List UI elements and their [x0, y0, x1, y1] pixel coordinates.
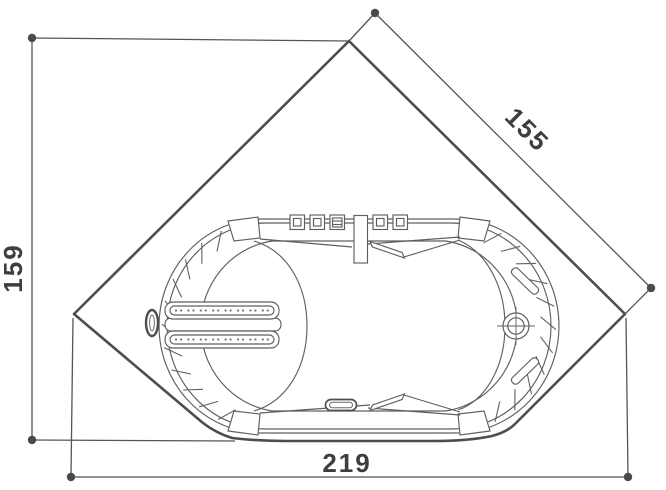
jet-dot — [200, 309, 202, 311]
rim-end-block — [458, 411, 490, 435]
control-button — [290, 215, 305, 230]
jet-dot — [180, 309, 182, 311]
jet-dot — [212, 338, 214, 340]
jet-dot — [237, 309, 239, 311]
overflow-fitting — [326, 400, 357, 411]
jet-dot — [237, 338, 239, 340]
dimension-label-219: 219 — [322, 448, 371, 478]
dim-219-ext-right — [626, 318, 628, 477]
dim-dot — [371, 9, 379, 17]
dim-dot — [28, 34, 36, 42]
drawing-canvas: 155 159 219 — [0, 0, 666, 490]
backrest-jet-rails — [165, 302, 281, 348]
dimension-label-155: 155 — [499, 102, 555, 158]
dim-159-ext-bottom — [32, 440, 235, 441]
jet-dot — [249, 309, 251, 311]
rim-tick — [183, 389, 203, 390]
jet-dot — [187, 338, 189, 340]
jet-dot — [267, 338, 269, 340]
jet-dot — [224, 338, 226, 340]
rail-middle — [165, 318, 281, 331]
jet-dot — [217, 309, 219, 311]
jet-dot — [229, 338, 231, 340]
rim-end-block — [228, 411, 260, 435]
jet-dot — [175, 338, 177, 340]
jet-dot — [262, 338, 264, 340]
jet-dot — [229, 309, 231, 311]
dim-dot — [624, 473, 632, 481]
dim-dot — [67, 473, 75, 481]
jet-dot — [242, 338, 244, 340]
jet-dot — [262, 309, 264, 311]
jet-dot — [175, 309, 177, 311]
jet-dot — [187, 309, 189, 311]
dimension-label-159: 159 — [0, 243, 28, 292]
rim-end-block — [458, 217, 490, 241]
dim-159-ext-top — [32, 38, 349, 41]
jet-dot — [254, 309, 256, 311]
control-button — [373, 215, 388, 230]
bathtub-technical-drawing: 155 159 219 — [0, 0, 666, 490]
jet-dot — [205, 338, 207, 340]
jet-dot — [200, 338, 202, 340]
jet-dot — [180, 338, 182, 340]
jet-dot — [205, 309, 207, 311]
jet-dot — [212, 309, 214, 311]
jet-dot — [267, 309, 269, 311]
jet-dot — [224, 309, 226, 311]
jet-dot — [192, 309, 194, 311]
rim-end-block — [228, 217, 260, 241]
faucet-column — [354, 216, 368, 264]
control-button — [393, 215, 408, 230]
jet-dot — [254, 338, 256, 340]
dim-219-ext-left — [71, 318, 73, 477]
dim-155-ext-right — [625, 288, 651, 314]
dim-155-ext-apex — [349, 13, 375, 41]
dim-dot — [647, 284, 655, 292]
control-button — [310, 215, 325, 230]
jet-dot — [192, 338, 194, 340]
blower-button — [330, 215, 345, 230]
jet-dot — [249, 338, 251, 340]
jet-dot — [217, 338, 219, 340]
dim-dot — [28, 436, 36, 444]
jet-dot — [242, 309, 244, 311]
